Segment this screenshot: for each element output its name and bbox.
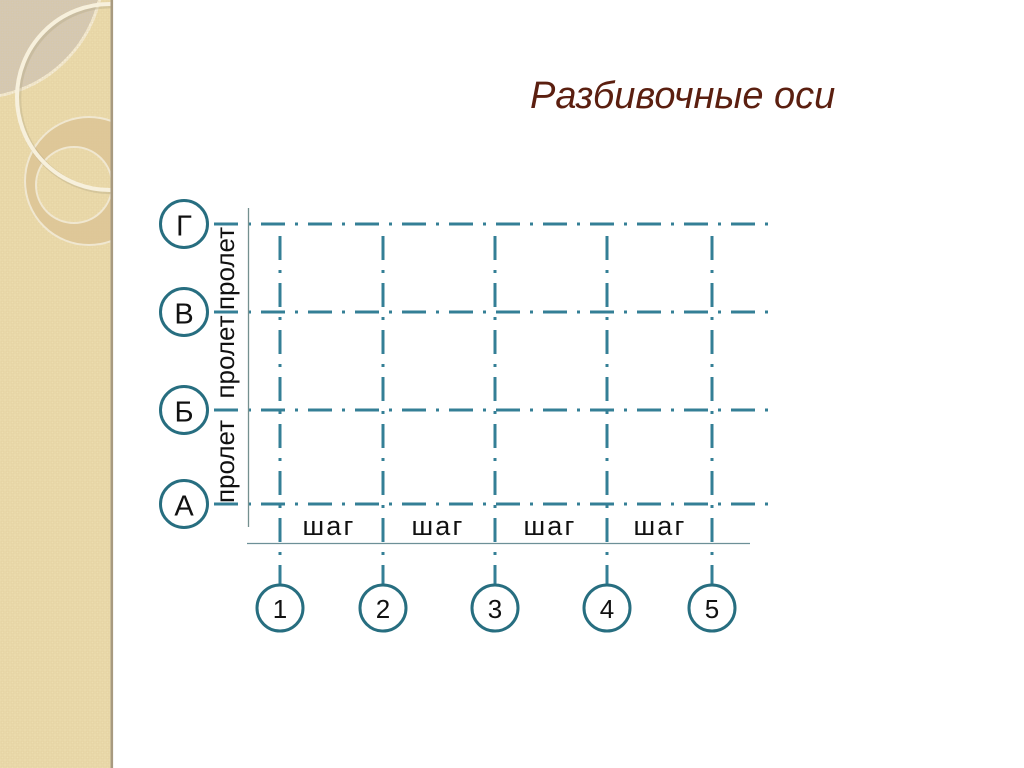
svg-text:1: 1 xyxy=(273,594,287,624)
svg-text:Б: Б xyxy=(174,397,193,429)
svg-text:шаг: шаг xyxy=(302,511,355,541)
svg-text:А: А xyxy=(174,491,194,523)
svg-text:пролет: пролет xyxy=(210,420,240,503)
svg-text:пролет: пролет xyxy=(210,227,240,310)
svg-text:шаг: шаг xyxy=(633,511,686,541)
svg-text:2: 2 xyxy=(376,594,390,624)
svg-text:4: 4 xyxy=(600,594,614,624)
svg-text:Разбивочные оси: Разбивочные оси xyxy=(530,75,835,117)
svg-text:шаг: шаг xyxy=(411,511,464,541)
svg-text:5: 5 xyxy=(705,594,719,624)
svg-text:шаг: шаг xyxy=(523,511,576,541)
svg-text:пролет: пролет xyxy=(210,315,240,398)
svg-text:3: 3 xyxy=(488,594,502,624)
svg-text:В: В xyxy=(174,299,193,331)
svg-text:Г: Г xyxy=(176,211,192,243)
